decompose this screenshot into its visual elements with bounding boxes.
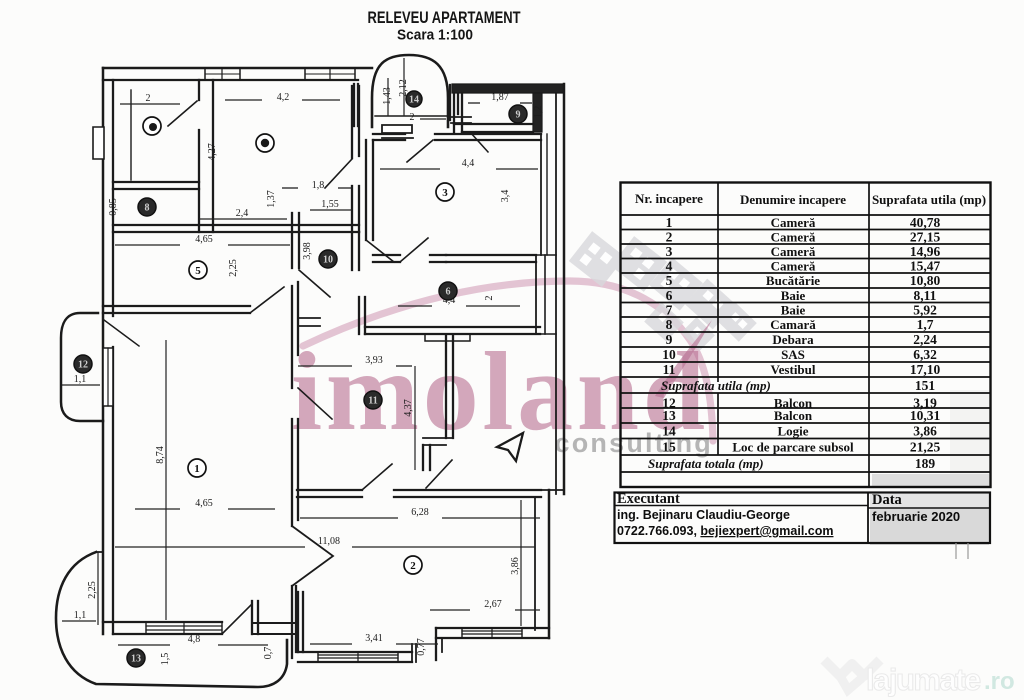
- svg-text:Cameră: Cameră: [771, 258, 816, 273]
- svg-text:.ro: .ro: [984, 668, 1015, 695]
- svg-text:1: 1: [666, 215, 673, 230]
- svg-text:1,1: 1,1: [74, 374, 87, 385]
- svg-text:7: 7: [666, 302, 673, 317]
- svg-text:5,92: 5,92: [913, 302, 937, 317]
- svg-text:11,08: 11,08: [318, 536, 340, 547]
- svg-text:15,47: 15,47: [910, 258, 941, 273]
- svg-text:1,43: 1,43: [382, 87, 393, 105]
- svg-text:3,98: 3,98: [302, 242, 313, 260]
- svg-text:ing. Bejinaru Claudiu-George: ing. Bejinaru Claudiu-George: [617, 508, 790, 522]
- svg-text:4,8: 4,8: [188, 634, 201, 645]
- svg-text:1,2: 1,2: [533, 106, 544, 119]
- svg-text:consulting: consulting: [555, 428, 714, 458]
- svg-text:14,96: 14,96: [910, 244, 941, 259]
- svg-text:6,28: 6,28: [411, 507, 429, 518]
- svg-text:Cameră: Cameră: [771, 229, 816, 244]
- svg-text:27,15: 27,15: [910, 229, 941, 244]
- svg-text:1,37: 1,37: [266, 190, 277, 208]
- svg-text:Scara 1:100: Scara 1:100: [397, 27, 473, 44]
- svg-text:Bucătărie: Bucătărie: [766, 273, 820, 288]
- svg-text:6: 6: [446, 287, 451, 298]
- svg-text:Debara: Debara: [772, 332, 814, 347]
- svg-text:9: 9: [666, 332, 673, 347]
- svg-text:2: 2: [666, 229, 673, 244]
- svg-text:2: 2: [410, 112, 415, 123]
- svg-text:1,1: 1,1: [74, 610, 87, 621]
- svg-text:15: 15: [662, 439, 676, 454]
- svg-text:lajumate: lajumate: [866, 662, 981, 697]
- svg-text:10,80: 10,80: [910, 273, 941, 288]
- svg-text:Suprafata utila (mp): Suprafata utila (mp): [661, 378, 771, 393]
- svg-text:februarie 2020: februarie 2020: [872, 509, 960, 524]
- svg-text:4,27: 4,27: [207, 143, 218, 161]
- svg-text:0,77: 0,77: [416, 638, 427, 656]
- svg-text:4,37: 4,37: [403, 399, 414, 417]
- svg-text:Data: Data: [872, 492, 903, 508]
- svg-text:1,87: 1,87: [491, 92, 509, 103]
- svg-text:4: 4: [666, 258, 673, 273]
- svg-text:1,7: 1,7: [917, 317, 934, 332]
- svg-text:Executant: Executant: [617, 491, 680, 507]
- svg-text:10: 10: [662, 347, 676, 362]
- svg-text:Suprafata utila (mp): Suprafata utila (mp): [872, 192, 986, 207]
- svg-text:12: 12: [78, 360, 88, 371]
- svg-text:6: 6: [666, 288, 673, 303]
- svg-text:Balcon: Balcon: [774, 408, 813, 423]
- svg-text:8,74: 8,74: [155, 446, 166, 464]
- svg-text:17,10: 17,10: [910, 362, 941, 377]
- svg-text:11: 11: [663, 362, 676, 377]
- svg-text:1,8: 1,8: [312, 180, 325, 191]
- svg-text:8: 8: [666, 317, 673, 332]
- svg-text:2: 2: [146, 93, 151, 104]
- svg-text:Denumire incapere: Denumire incapere: [740, 192, 846, 207]
- svg-text:13: 13: [662, 408, 676, 423]
- svg-text:3,4: 3,4: [500, 190, 511, 203]
- svg-text:2: 2: [484, 296, 495, 301]
- svg-text:Logie: Logie: [777, 423, 808, 438]
- svg-text:5: 5: [666, 273, 673, 288]
- svg-text:13: 13: [131, 654, 141, 665]
- svg-text:2,25: 2,25: [228, 259, 239, 277]
- svg-text:Camară: Camară: [770, 317, 816, 332]
- svg-text:1,55: 1,55: [321, 199, 339, 210]
- svg-text:2,25: 2,25: [87, 581, 98, 599]
- svg-text:9: 9: [516, 110, 521, 121]
- svg-text:5: 5: [195, 265, 201, 277]
- svg-text:Baie: Baie: [781, 288, 806, 303]
- svg-text:Cameră: Cameră: [771, 244, 816, 259]
- svg-text:3: 3: [666, 244, 673, 259]
- svg-text:Cameră: Cameră: [771, 215, 816, 230]
- svg-text:1,5: 1,5: [160, 653, 171, 666]
- svg-text:14: 14: [662, 423, 676, 438]
- svg-text:0,7: 0,7: [263, 647, 274, 660]
- svg-text:1: 1: [194, 463, 200, 475]
- svg-text:4,65: 4,65: [195, 234, 213, 245]
- svg-text:6,32: 6,32: [913, 347, 937, 362]
- svg-text:189: 189: [915, 456, 936, 471]
- svg-text:14: 14: [409, 95, 419, 106]
- svg-text:3,86: 3,86: [510, 557, 521, 575]
- svg-text:2,24: 2,24: [913, 332, 937, 347]
- svg-text:0,85: 0,85: [108, 198, 119, 216]
- svg-text:151: 151: [915, 378, 936, 393]
- svg-text:SAS: SAS: [781, 347, 805, 362]
- svg-text:21,25: 21,25: [910, 439, 941, 454]
- svg-text:0722.766.093, bejiexpert@gmail: 0722.766.093, bejiexpert@gmail.com: [617, 524, 834, 538]
- svg-text:Suprafata totala (mp): Suprafata totala (mp): [648, 456, 764, 471]
- svg-text:Baie: Baie: [781, 302, 806, 317]
- svg-text:40,78: 40,78: [910, 215, 941, 230]
- svg-text:8: 8: [145, 203, 150, 214]
- svg-text:11: 11: [368, 396, 377, 407]
- svg-text:10: 10: [323, 255, 333, 266]
- svg-text:Vestibul: Vestibul: [770, 362, 815, 377]
- svg-text:2: 2: [410, 560, 416, 572]
- svg-text:3,86: 3,86: [913, 423, 937, 438]
- svg-text:3: 3: [442, 187, 448, 199]
- svg-text:10,31: 10,31: [910, 408, 941, 423]
- svg-text:4,65: 4,65: [195, 498, 213, 509]
- svg-text:2,67: 2,67: [484, 599, 502, 610]
- svg-text:4,4: 4,4: [462, 158, 475, 169]
- svg-text:RELEVEU APARTAMENT: RELEVEU APARTAMENT: [368, 8, 521, 27]
- svg-text:3,41: 3,41: [365, 633, 383, 644]
- svg-text:3,93: 3,93: [365, 355, 383, 366]
- svg-text:4,2: 4,2: [277, 92, 290, 103]
- svg-text:Nr. incapere: Nr. incapere: [635, 191, 703, 206]
- svg-text:Loc de parcare subsol: Loc de parcare subsol: [732, 439, 854, 454]
- svg-text:2,4: 2,4: [236, 208, 249, 219]
- svg-text:8,11: 8,11: [914, 288, 937, 303]
